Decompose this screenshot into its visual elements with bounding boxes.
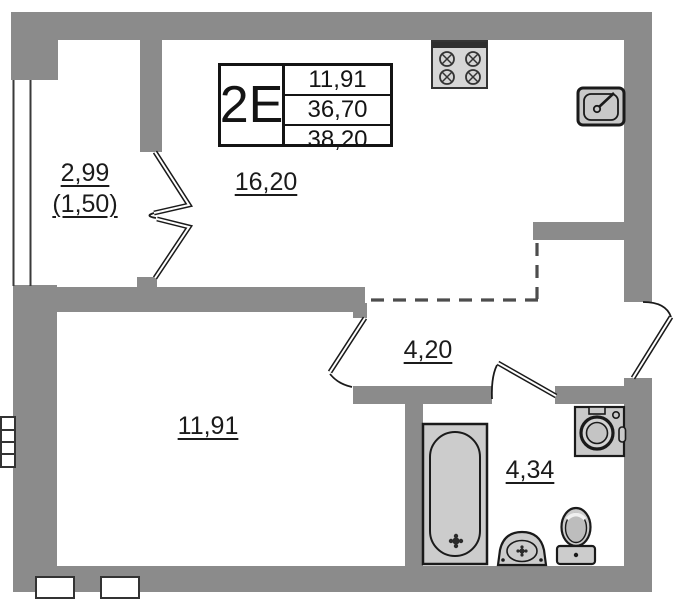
washbasin-icon: [498, 532, 546, 565]
room-area-label: 11,91: [158, 411, 258, 441]
wall-left-top-block: [11, 12, 58, 80]
balcony-area-label: 2,99 (1,50): [38, 158, 132, 220]
hallway-area-label: 4,20: [378, 335, 478, 365]
wall-top: [12, 12, 652, 40]
stove-icon: [432, 41, 487, 88]
toilet-icon: [557, 508, 595, 564]
wall-right-upper: [624, 40, 652, 302]
area-row-total: 38,20: [285, 126, 390, 154]
room-door: [330, 318, 365, 387]
title-block: 2E 11,91 36,70 38,20: [218, 63, 393, 147]
wall-room-door-jamb: [353, 303, 367, 318]
bathroom-area-label: 4,34: [480, 455, 580, 485]
wall-kitchen-entry: [533, 222, 624, 240]
wall-hall-south-right: [555, 386, 652, 404]
entry-door: [633, 302, 671, 378]
wall-right-lower: [624, 378, 652, 574]
left-wall-vent-detail: [1, 417, 15, 467]
open-boundary-dashed-line: [368, 243, 538, 300]
living-kitchen-area-label: 16,20: [216, 167, 316, 197]
floor-plan: 16,20 11,91 4,20 4,34 2,99 (1,50) 2E 11,…: [0, 0, 696, 600]
kitchen-sink-icon: [578, 88, 624, 125]
wall-living-room-divider: [13, 287, 365, 312]
balcony-glazing: [14, 80, 31, 286]
wall-living-west: [140, 40, 162, 152]
wall-left-lower: [13, 285, 57, 566]
wall-bathroom-west: [405, 386, 423, 566]
bathroom-door: [492, 363, 556, 399]
area-row-living: 11,91: [285, 66, 390, 96]
unit-type-label: 2E: [221, 66, 285, 144]
area-row-total-living: 36,70: [285, 96, 390, 126]
title-block-areas: 11,91 36,70 38,20: [285, 66, 390, 144]
washing-machine-icon: [575, 407, 626, 456]
bathtub-icon: [423, 424, 487, 564]
balcony-door: [149, 152, 189, 278]
